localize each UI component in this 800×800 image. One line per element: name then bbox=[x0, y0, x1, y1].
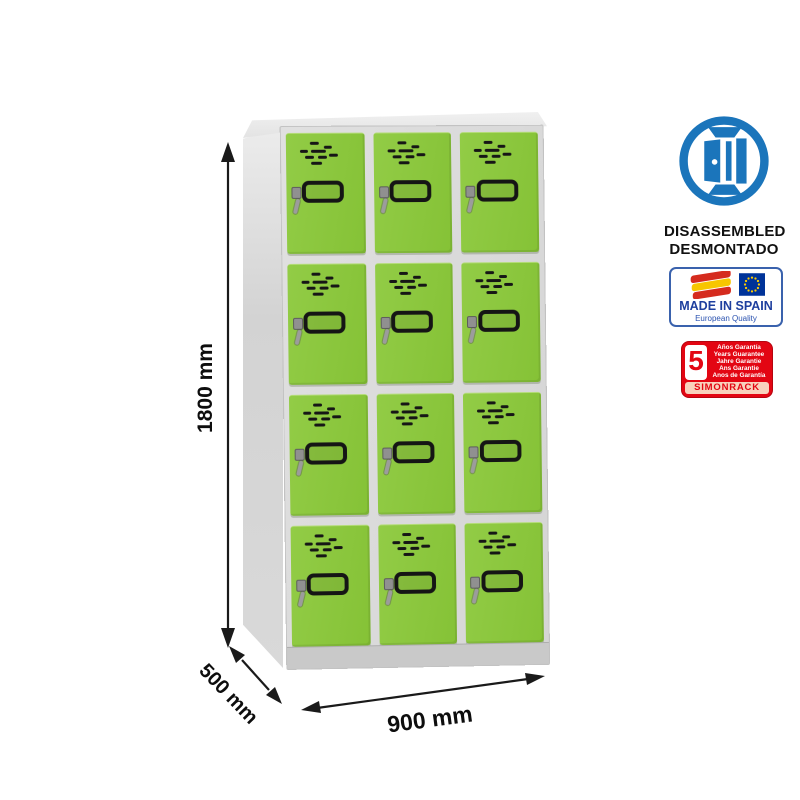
height-dimension-label: 1800 mm bbox=[194, 328, 218, 448]
guarantee-years: 5 bbox=[685, 345, 707, 380]
arrow-left-icon bbox=[301, 701, 321, 713]
made-in-spain-title: MADE IN SPAIN bbox=[679, 300, 773, 313]
guarantee-badge: 5 Años Garantía Years Guarantee Jahre Ga… bbox=[681, 341, 773, 398]
brand-label: SIMONRACK bbox=[685, 382, 769, 394]
guarantee-line: Anos de Garantía bbox=[709, 373, 769, 380]
spain-flag-icon bbox=[687, 271, 733, 299]
guarantee-top-row: 5 Años Garantía Years Guarantee Jahre Ga… bbox=[685, 345, 769, 380]
disassembled-label-es: DESMONTADO bbox=[664, 241, 784, 259]
arrow-right-icon bbox=[525, 673, 545, 685]
disassembled-label-en: DISASSEMBLED bbox=[664, 223, 784, 241]
open-door-icon bbox=[677, 114, 771, 208]
product-image: 1800 mm 500 mm 900 mm DISASSEMBLED DESMO… bbox=[0, 0, 800, 800]
made-in-spain-badge: MADE IN SPAIN European Quality bbox=[669, 267, 783, 327]
arrow-up-icon bbox=[221, 142, 235, 162]
made-in-spain-subtitle: European Quality bbox=[695, 314, 757, 323]
disassembled-badge: DISASSEMBLED DESMONTADO bbox=[664, 114, 784, 259]
flags-row bbox=[687, 271, 765, 299]
guarantee-lines: Años Garantía Years Guarantee Jahre Gara… bbox=[709, 345, 769, 380]
arrow-down-icon bbox=[221, 628, 235, 648]
eu-flag-icon bbox=[739, 273, 765, 296]
